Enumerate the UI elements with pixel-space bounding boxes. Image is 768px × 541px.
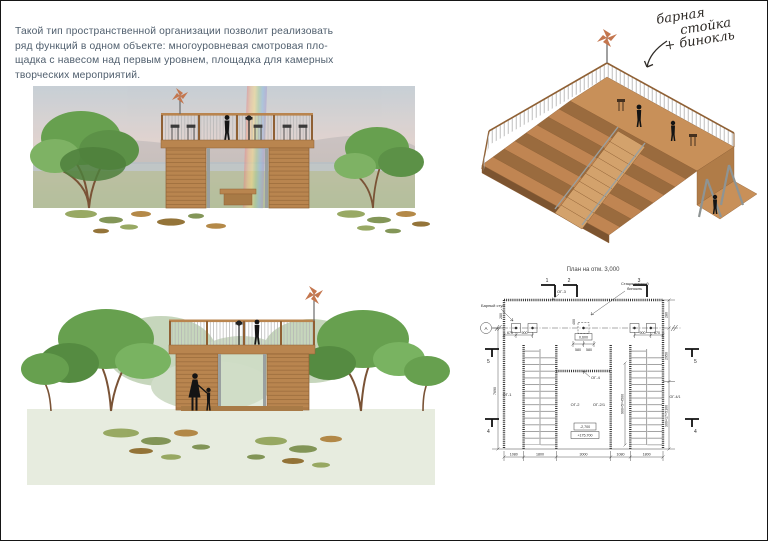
- label-og21: ОГ-2/1: [593, 402, 606, 407]
- rooster-pinwheel-icon: [305, 286, 323, 321]
- section-mark-2: 2: [568, 278, 571, 284]
- dim-670: 670: [507, 331, 513, 335]
- intro-line: Такой тип пространственной организации п…: [15, 25, 351, 40]
- dim-580: 580: [586, 348, 592, 352]
- dim-900: 900: [640, 331, 646, 335]
- axis-label: А: [484, 326, 487, 331]
- intro-line: щадка с навесом над первым уровнем, площ…: [15, 54, 351, 69]
- steel-post: [265, 148, 268, 208]
- railing-top-rail: [169, 320, 315, 323]
- ground-plane: [27, 409, 435, 485]
- base-step: [181, 406, 303, 411]
- slatted-wall-right: [269, 148, 309, 208]
- dim-0600: 0,600: [579, 336, 588, 340]
- dims-top: 670 900 900 670 400 0,600 580 580: [503, 319, 665, 352]
- dim-7690: 7690: [493, 387, 497, 395]
- section-mark-4: 4: [487, 429, 490, 435]
- dim-280: 280: [499, 313, 503, 319]
- open-bay: [221, 354, 265, 410]
- slatted-wall-right: [267, 354, 309, 410]
- dim-300x17: 300×17=5100: [665, 405, 669, 427]
- intro-line: ряд функций в одном объекте: многоуровне…: [15, 40, 351, 55]
- label-bar-stool: Барный стул: [481, 303, 505, 308]
- dims-bottom: 1080 1800 3000 1080 1800: [503, 451, 665, 461]
- section-mark-5: 5: [694, 359, 697, 365]
- deck-band: [169, 345, 315, 354]
- label-og1: ОГ-1: [503, 392, 513, 397]
- pavilion-rear: [169, 286, 323, 411]
- dim-3000: 3000: [580, 453, 588, 457]
- stair-treads: [525, 349, 662, 445]
- note-arrow-icon: [641, 35, 671, 75]
- dim-280: 280: [665, 312, 669, 318]
- slatted-wall-left: [166, 148, 206, 208]
- steel-post: [263, 354, 266, 410]
- label-og4: ОГ-4: [591, 375, 601, 380]
- section-mark-5: 5: [487, 359, 490, 365]
- dim-900x5: 900×5=4500: [621, 394, 625, 414]
- floor-plan-drawing: План на отм. 3,000 1 2 3 ОГ-3 Барный сту…: [479, 263, 707, 508]
- presentation-board: Такой тип пространственной организации п…: [0, 0, 768, 541]
- label-og2: ОГ-2: [571, 402, 581, 407]
- grass-patches: [65, 210, 430, 233]
- elevation-front-drawing: [11, 86, 436, 254]
- dim-1800: 1800: [536, 453, 544, 457]
- steel-post: [218, 354, 221, 410]
- elevation-marks: -2,700 +175,700: [571, 423, 599, 439]
- section-mark-1: 1: [546, 278, 549, 284]
- section-mark-4: 4: [694, 429, 697, 435]
- dim-400: 400: [572, 319, 576, 325]
- label-binoculars-2: бинокль: [627, 286, 642, 291]
- elevation-render-rear: [11, 281, 451, 493]
- elev-bottom: +175,700: [577, 434, 592, 438]
- dim-1800: 1800: [643, 453, 651, 457]
- railing-balusters: [169, 322, 315, 345]
- elevation-render-front: [11, 86, 436, 254]
- label-og41: ОГ-4/1: [670, 395, 681, 399]
- intro-line: творческих мероприятий.: [15, 69, 351, 84]
- bench: [220, 189, 256, 205]
- elevation-rear-drawing: [11, 281, 451, 493]
- elev-top: -2,700: [580, 425, 590, 429]
- dim-1080: 1080: [510, 453, 518, 457]
- dim-580: 580: [575, 348, 581, 352]
- dims-left: 7690 280 5 4: [485, 313, 504, 451]
- dim-900: 900: [522, 331, 528, 335]
- columns: [512, 323, 656, 334]
- plan-title: План на отм. 3,000: [567, 267, 621, 273]
- dim-1080: 1080: [617, 453, 625, 457]
- deck-band: [161, 140, 314, 148]
- steel-post: [207, 148, 210, 208]
- dim-670: 670: [654, 331, 660, 335]
- dim-2950: 2950: [665, 352, 669, 360]
- tree-right-pair: [302, 310, 450, 411]
- floor-plan: План на отм. 3,000 1 2 3 ОГ-3 Барный сту…: [479, 263, 707, 508]
- intro-paragraph: Такой тип пространственной организации п…: [15, 25, 351, 83]
- label-og3: ОГ-3: [557, 289, 567, 294]
- rooster-pinwheel-icon: [597, 29, 617, 63]
